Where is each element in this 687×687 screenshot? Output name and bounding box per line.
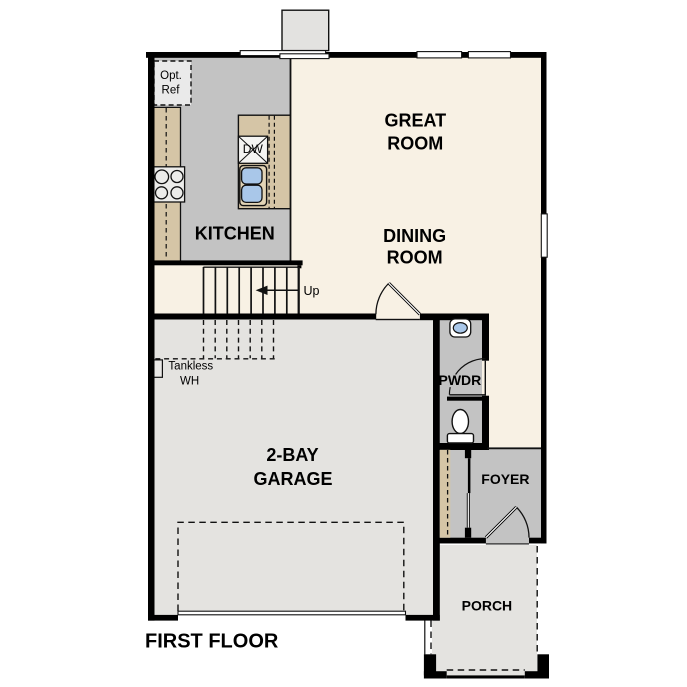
svg-text:DW: DW bbox=[243, 142, 264, 156]
svg-text:Opt.: Opt. bbox=[160, 70, 182, 82]
svg-text:FOYER: FOYER bbox=[481, 471, 529, 487]
svg-text:Tankless: Tankless bbox=[168, 361, 213, 373]
svg-text:Up: Up bbox=[304, 284, 320, 298]
svg-text:GREAT: GREAT bbox=[384, 111, 446, 131]
svg-text:ROOM: ROOM bbox=[387, 248, 443, 268]
svg-text:PWDR: PWDR bbox=[439, 372, 482, 388]
svg-text:ROOM: ROOM bbox=[387, 134, 443, 154]
svg-text:DINING: DINING bbox=[383, 226, 446, 246]
svg-text:FIRST FLOOR: FIRST FLOOR bbox=[145, 631, 279, 653]
svg-text:2-BAY: 2-BAY bbox=[266, 445, 318, 465]
svg-text:KITCHEN: KITCHEN bbox=[195, 224, 275, 244]
svg-text:WH: WH bbox=[180, 376, 199, 388]
svg-text:PORCH: PORCH bbox=[462, 597, 513, 613]
svg-text:GARAGE: GARAGE bbox=[253, 469, 332, 489]
svg-text:Ref: Ref bbox=[162, 85, 181, 97]
